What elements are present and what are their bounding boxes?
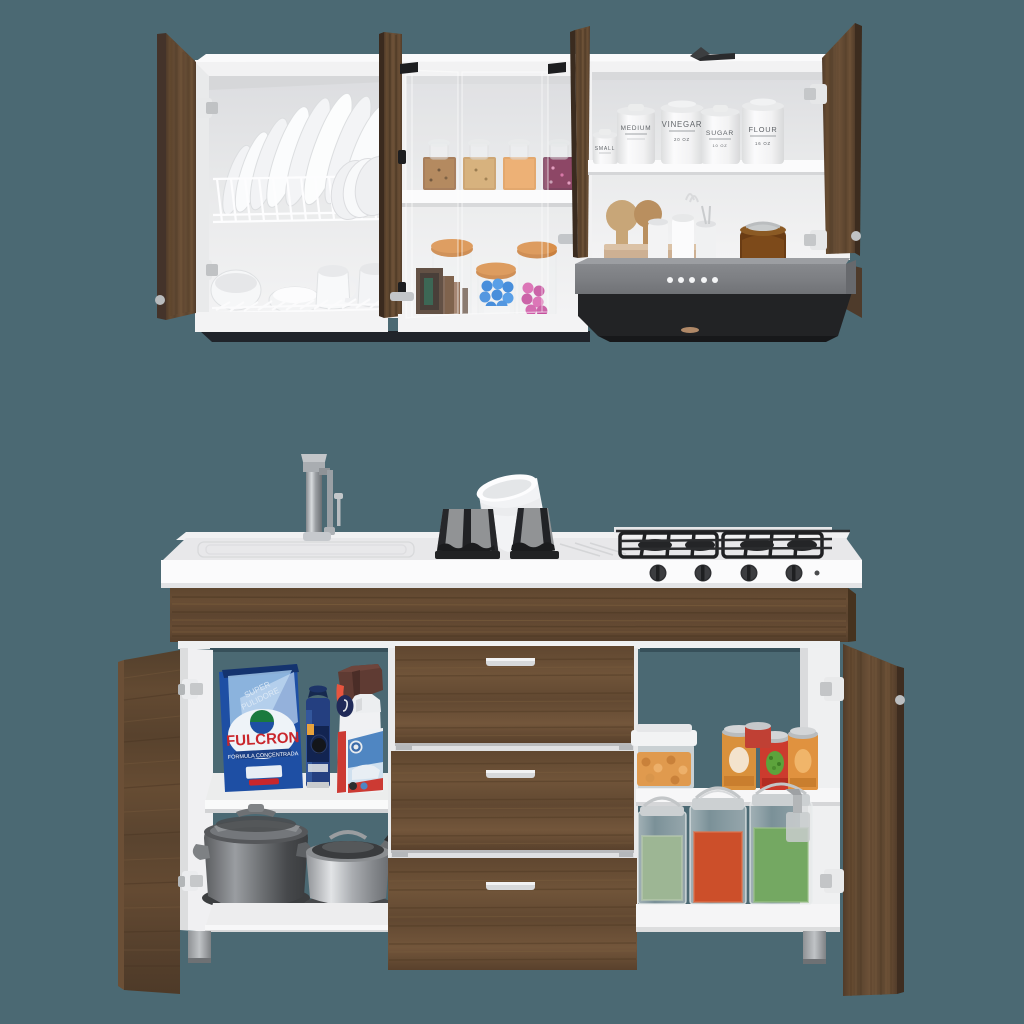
svg-text:FLOUR: FLOUR: [748, 125, 777, 134]
svg-text:SUGAR: SUGAR: [706, 130, 734, 137]
svg-text:SMALL: SMALL: [595, 146, 615, 152]
svg-text:10 OZ: 10 OZ: [712, 143, 727, 148]
svg-text:20 OZ: 20 OZ: [674, 137, 690, 142]
svg-text:VINEGAR: VINEGAR: [662, 120, 703, 129]
svg-text:16 OZ: 16 OZ: [755, 141, 771, 146]
svg-text:MEDIUM: MEDIUM: [621, 125, 652, 132]
